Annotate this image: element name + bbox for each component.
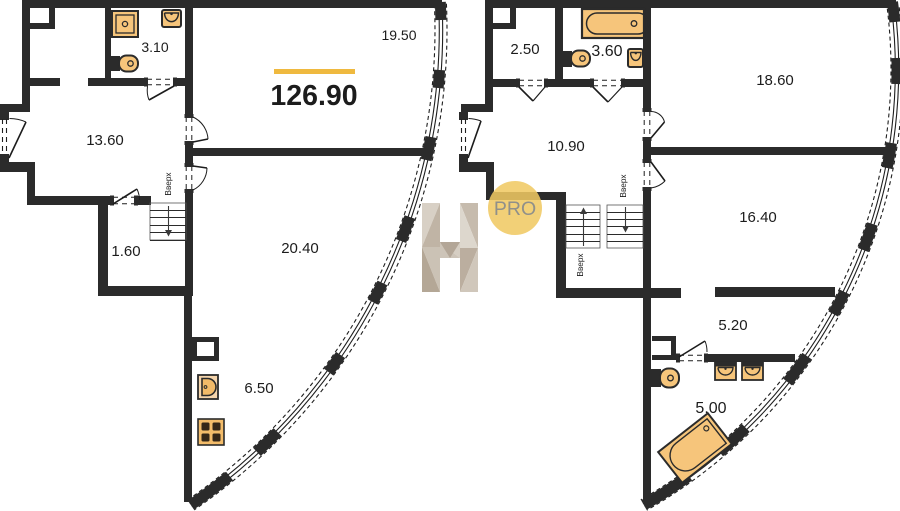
svg-text:1.60: 1.60 — [111, 243, 140, 260]
svg-text:Вверх: Вверх — [575, 253, 585, 277]
svg-text:5.00: 5.00 — [695, 400, 726, 417]
svg-text:PRO: PRO — [494, 198, 536, 220]
svg-text:13.60: 13.60 — [86, 132, 124, 149]
svg-text:3.60: 3.60 — [591, 43, 622, 60]
svg-text:10.90: 10.90 — [547, 138, 585, 155]
svg-text:2.50: 2.50 — [510, 41, 539, 58]
svg-text:18.60: 18.60 — [756, 72, 794, 89]
svg-text:Вверх: Вверх — [618, 174, 628, 198]
svg-text:19.50: 19.50 — [381, 27, 416, 43]
svg-text:5.20: 5.20 — [718, 317, 747, 334]
svg-text:6.50: 6.50 — [244, 380, 273, 397]
svg-text:Вверх: Вверх — [163, 172, 173, 196]
svg-text:3.10: 3.10 — [141, 39, 168, 55]
svg-text:126.90: 126.90 — [270, 80, 357, 112]
svg-text:16.40: 16.40 — [739, 209, 777, 226]
svg-text:20.40: 20.40 — [281, 240, 319, 257]
